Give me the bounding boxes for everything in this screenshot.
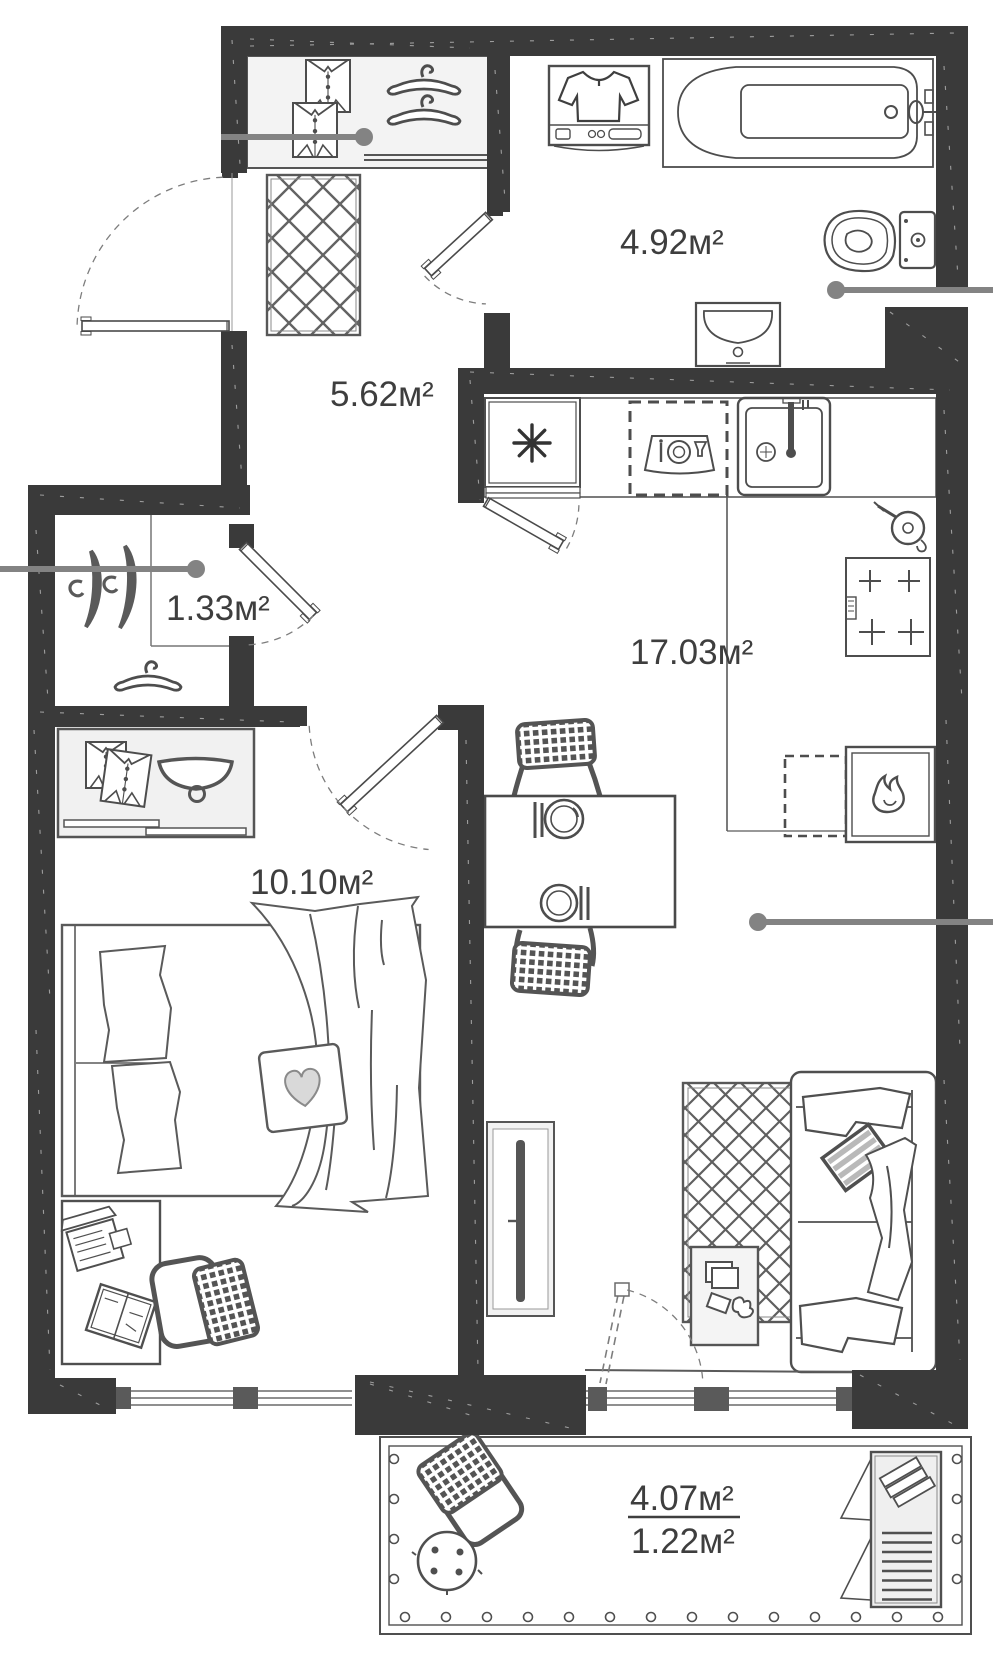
svg-text:17.03м²: 17.03м² <box>630 633 753 672</box>
svg-text:4.07м²: 4.07м² <box>630 1479 734 1518</box>
svg-text:10.10м²: 10.10м² <box>250 863 373 902</box>
svg-text:4.92м²: 4.92м² <box>620 223 724 262</box>
svg-text:1.22м²: 1.22м² <box>631 1522 735 1561</box>
svg-text:1.33м²: 1.33м² <box>166 589 270 628</box>
svg-text:5.62м²: 5.62м² <box>330 375 434 414</box>
